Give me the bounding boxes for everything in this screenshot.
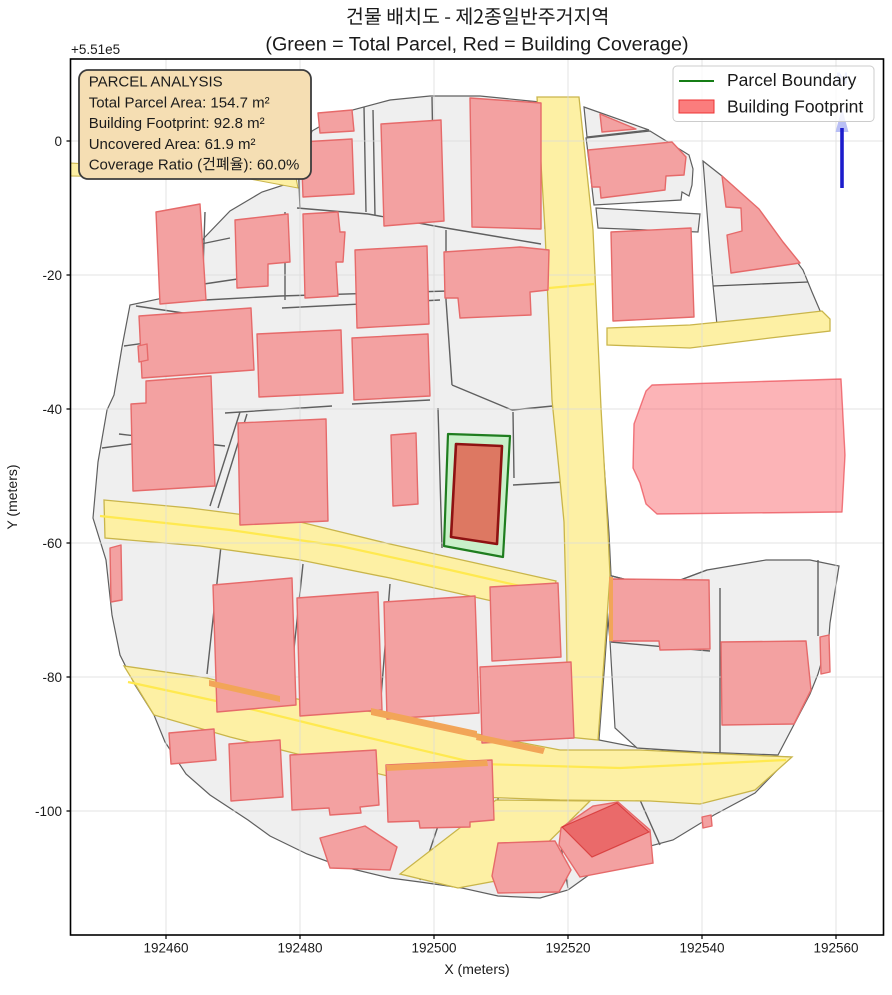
svg-text:-40: -40 [42,402,62,417]
svg-text:X (meters): X (meters) [444,961,509,977]
svg-text:-80: -80 [42,670,62,685]
svg-text:192500: 192500 [411,941,456,956]
svg-text:-20: -20 [42,268,62,283]
svg-text:192560: 192560 [813,941,858,956]
svg-text:+5.51e5: +5.51e5 [71,42,120,57]
svg-text:-100: -100 [35,804,62,819]
svg-text:): 60.0%: ): 60.0% [244,156,300,173]
svg-text:192460: 192460 [143,941,188,956]
svg-text:Building Footprint: Building Footprint [727,97,863,117]
svg-text:Total Parcel Area: 154.7 m²: Total Parcel Area: 154.7 m² [89,94,270,111]
svg-text:0: 0 [54,134,62,149]
svg-text:-60: -60 [42,536,62,551]
svg-text:192540: 192540 [679,941,724,956]
svg-text:PARCEL ANALYSIS: PARCEL ANALYSIS [89,74,223,91]
svg-text:Parcel Boundary: Parcel Boundary [727,70,857,90]
svg-text:Building Footprint: 92.8 m²: Building Footprint: 92.8 m² [89,115,265,132]
svg-text:Y (meters): Y (meters) [4,464,20,529]
svg-text:Uncovered Area: 61.9 m²: Uncovered Area: 61.9 m² [89,136,256,153]
svg-text:192520: 192520 [545,941,590,956]
svg-text:Coverage Ratio (: Coverage Ratio ( [89,156,202,173]
svg-text:192480: 192480 [277,941,322,956]
svg-text:(Green = Total Parcel, Red = B: (Green = Total Parcel, Red = Building Co… [265,34,688,56]
